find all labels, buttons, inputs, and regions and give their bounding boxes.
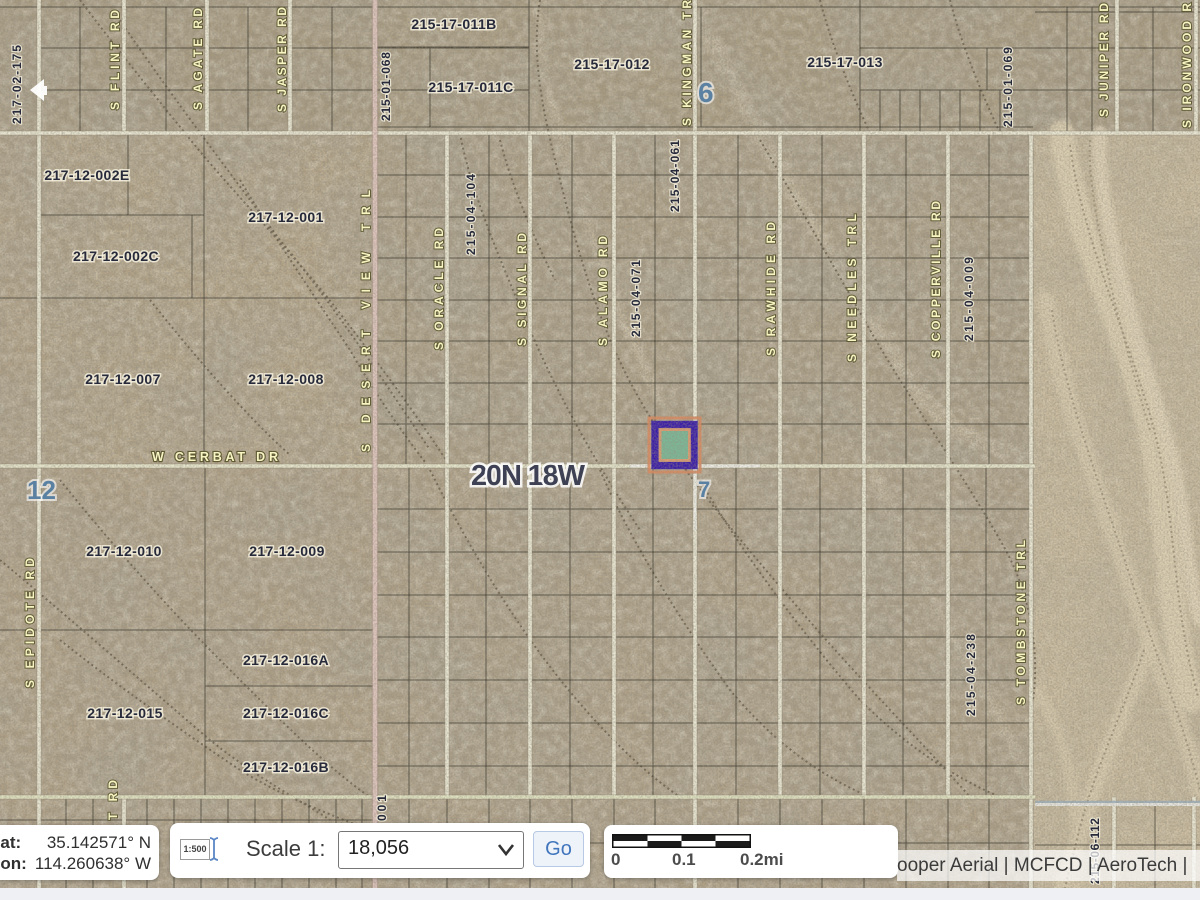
svg-text:217-12-015: 217-12-015 [87,705,163,721]
svg-text:215-04-071: 215-04-071 [629,260,643,337]
svg-text:S COPPERVILLE RD: S COPPERVILLE RD [929,201,943,358]
svg-text:217-12-001: 217-12-001 [248,209,324,225]
svg-text:S FLINT RD: S FLINT RD [108,10,122,110]
svg-text:215-04-061: 215-04-061 [668,140,682,212]
svg-text:217-12-002E: 217-12-002E [44,167,129,183]
svg-text:S IRONWOOD R: S IRONWOOD R [1180,3,1194,128]
svg-text:215-17-013: 215-17-013 [807,54,883,70]
svg-text:217-12-007: 217-12-007 [85,371,161,387]
svg-text:6: 6 [698,77,714,108]
svg-text:215-01-068: 215-01-068 [379,52,393,121]
svg-text:T RD: T RD [106,780,120,820]
svg-text:215-01-069: 215-01-069 [1001,47,1015,127]
svg-text:W CERBAT DR: W CERBAT DR [152,450,278,464]
svg-text:217-12-010: 217-12-010 [86,543,162,559]
svg-text:S TOMBSTONE TRL: S TOMBSTONE TRL [1014,540,1028,705]
svg-text:S JUNIPER RD: S JUNIPER RD [1097,3,1111,117]
svg-text:217-12-016C: 217-12-016C [243,705,329,721]
svg-text:217-12-016B: 217-12-016B [243,759,329,775]
svg-text:217-02-175: 217-02-175 [10,45,24,124]
svg-text:S JASPER RD: S JASPER RD [275,7,289,112]
svg-text:217-12-002C: 217-12-002C [73,248,159,264]
svg-text:S KINGMAN TR: S KINGMAN TR [680,0,694,126]
svg-text:215-17-012: 215-17-012 [574,56,650,72]
svg-text:217-12-016A: 217-12-016A [243,652,329,668]
svg-text:217-12-008: 217-12-008 [248,371,324,387]
svg-text:12: 12 [27,475,56,505]
svg-text:7: 7 [698,477,710,502]
svg-text:215-17-011B: 215-17-011B [411,16,496,32]
svg-text:S EPIDOTE RD: S EPIDOTE RD [23,558,37,688]
svg-text:S ORACLE RD: S ORACLE RD [432,228,446,350]
svg-text:215-04-104: 215-04-104 [464,174,478,255]
svg-text:215-04-238: 215-04-238 [964,634,978,716]
svg-text:217-12-009: 217-12-009 [249,543,325,559]
svg-text:001: 001 [375,795,389,821]
svg-text:S RAWHIDE RD: S RAWHIDE RD [764,222,778,356]
svg-text:20N 18W: 20N 18W [471,460,586,492]
svg-text:215-17-011C: 215-17-011C [428,79,513,95]
